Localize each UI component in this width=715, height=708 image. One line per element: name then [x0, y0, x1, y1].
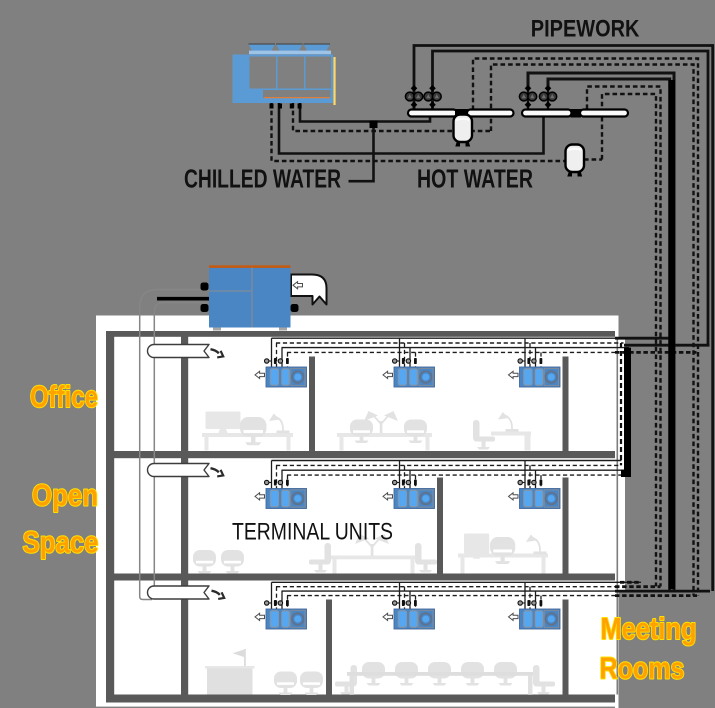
svg-text:PIPEWORK: PIPEWORK: [531, 16, 640, 43]
svg-text:Meeting: Meeting: [601, 611, 697, 646]
svg-text:HOT WATER: HOT WATER: [417, 164, 533, 194]
svg-text:TERMINAL UNITS: TERMINAL UNITS: [232, 519, 393, 546]
svg-text:Space: Space: [23, 525, 99, 560]
svg-text:Rooms: Rooms: [600, 651, 685, 686]
svg-text:Open: Open: [32, 478, 98, 513]
svg-text:Office: Office: [30, 379, 98, 414]
svg-text:CHILLED WATER: CHILLED WATER: [184, 164, 341, 194]
